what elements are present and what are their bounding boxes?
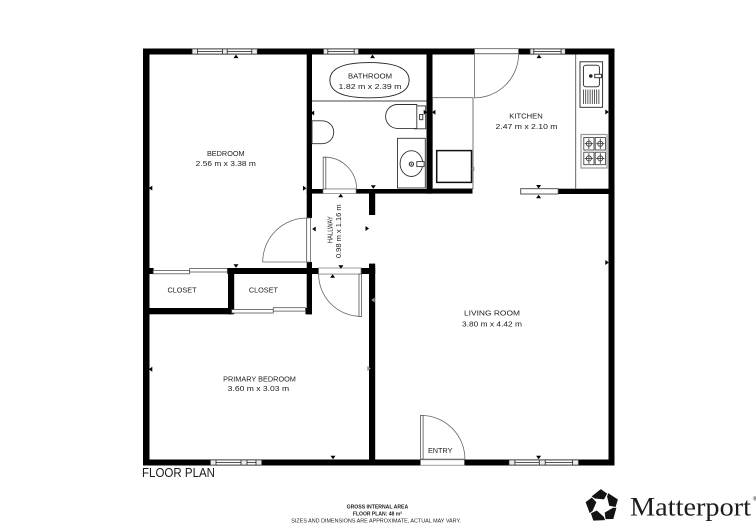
svg-text:2.56 m x 3.38 m: 2.56 m x 3.38 m xyxy=(196,159,256,168)
svg-text:CLOSET: CLOSET xyxy=(249,285,278,294)
svg-text:FLOOR PLAN: FLOOR PLAN xyxy=(142,465,215,480)
svg-text:LIVING ROOM: LIVING ROOM xyxy=(464,309,520,318)
svg-text:SIZES AND DIMENSIONS ARE APPRO: SIZES AND DIMENSIONS ARE APPROXIMATE, AC… xyxy=(291,519,461,525)
svg-text:ENTRY: ENTRY xyxy=(428,446,453,455)
svg-text:PRIMARY BEDROOM: PRIMARY BEDROOM xyxy=(223,374,296,383)
svg-text:®: ® xyxy=(753,496,756,503)
svg-text:FLOOR PLAN: 48 m²: FLOOR PLAN: 48 m² xyxy=(353,511,402,518)
svg-text:CLOSET: CLOSET xyxy=(168,285,197,294)
svg-text:GROSS INTERNAL AREA: GROSS INTERNAL AREA xyxy=(347,505,409,511)
svg-text:BATHROOM: BATHROOM xyxy=(348,72,392,81)
svg-text:KITCHEN: KITCHEN xyxy=(509,112,543,121)
svg-text:2.47 m x 2.10 m: 2.47 m x 2.10 m xyxy=(496,122,558,131)
svg-text:1.82 m x 2.39 m: 1.82 m x 2.39 m xyxy=(339,82,402,91)
svg-text:3.60 m x 3.03 m: 3.60 m x 3.03 m xyxy=(228,384,289,393)
svg-text:Matterport: Matterport xyxy=(630,492,752,521)
svg-text:0.98 m x 1.16 m: 0.98 m x 1.16 m xyxy=(334,204,343,258)
svg-text:BEDROOM: BEDROOM xyxy=(207,149,245,158)
svg-text:3.80 m x 4.42 m: 3.80 m x 4.42 m xyxy=(462,319,522,328)
